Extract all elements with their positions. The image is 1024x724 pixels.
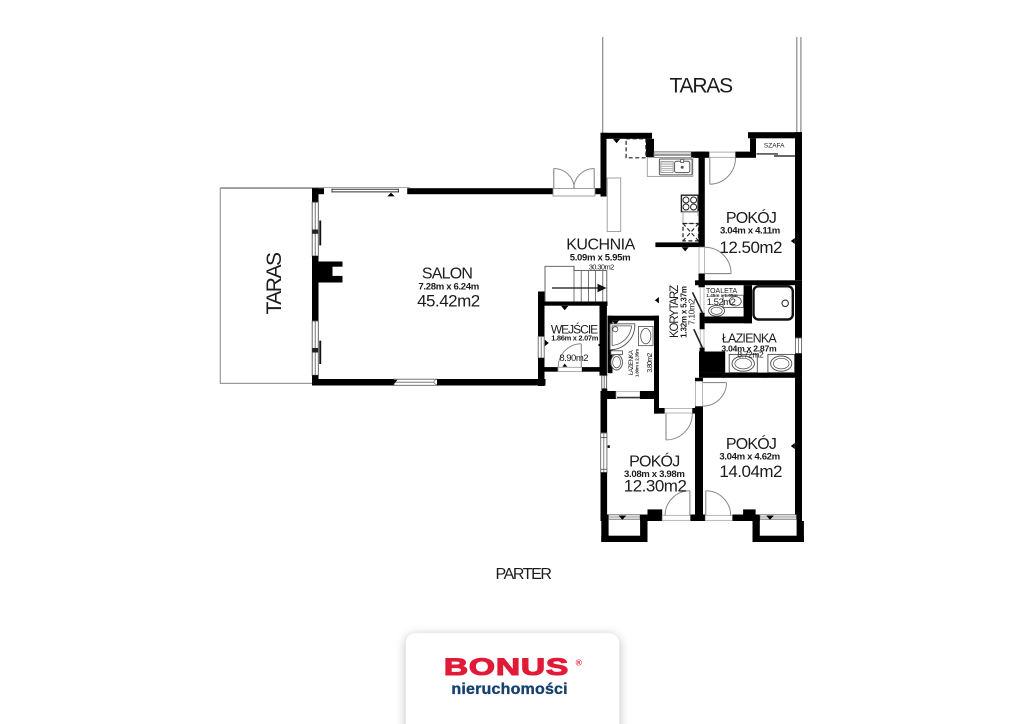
- svg-text:KUCHNIA: KUCHNIA: [566, 237, 635, 254]
- svg-text:12.50m2: 12.50m2: [719, 238, 782, 257]
- svg-text:3.80m2: 3.80m2: [647, 353, 654, 373]
- svg-text:POKÓJ: POKÓJ: [629, 452, 679, 471]
- svg-text:1.60m x 2.35m: 1.60m x 2.35m: [635, 349, 640, 377]
- svg-text:8.72m2: 8.72m2: [737, 349, 764, 359]
- svg-text:BONUS: BONUS: [444, 653, 569, 681]
- svg-text:3.04m x 4.11m: 3.04m x 4.11m: [720, 226, 780, 237]
- svg-text:nieruchomości: nieruchomości: [451, 681, 567, 698]
- svg-text:1.52m2: 1.52m2: [707, 297, 736, 308]
- svg-text:3.04m x 4.62m: 3.04m x 4.62m: [719, 451, 780, 462]
- svg-text:SZAFA: SZAFA: [764, 142, 785, 149]
- svg-text:PARTER: PARTER: [495, 566, 551, 583]
- svg-text:30.30m2: 30.30m2: [589, 262, 614, 271]
- svg-text:TARAS: TARAS: [263, 252, 286, 314]
- svg-text:POKÓJ: POKÓJ: [726, 434, 776, 453]
- svg-text:TARAS: TARAS: [669, 75, 733, 98]
- svg-text:14.04m2: 14.04m2: [719, 462, 782, 481]
- svg-text:12.30m2: 12.30m2: [624, 477, 687, 496]
- svg-text:7.10m2: 7.10m2: [686, 298, 696, 325]
- svg-text:8.90m2: 8.90m2: [559, 353, 588, 364]
- svg-text:45.42m2: 45.42m2: [417, 292, 480, 311]
- svg-text:1.86m x 2.07m: 1.86m x 2.07m: [551, 334, 599, 343]
- svg-text:®: ®: [576, 658, 583, 668]
- svg-text:POKÓJ: POKÓJ: [726, 208, 776, 227]
- svg-text:SALON: SALON: [422, 266, 472, 283]
